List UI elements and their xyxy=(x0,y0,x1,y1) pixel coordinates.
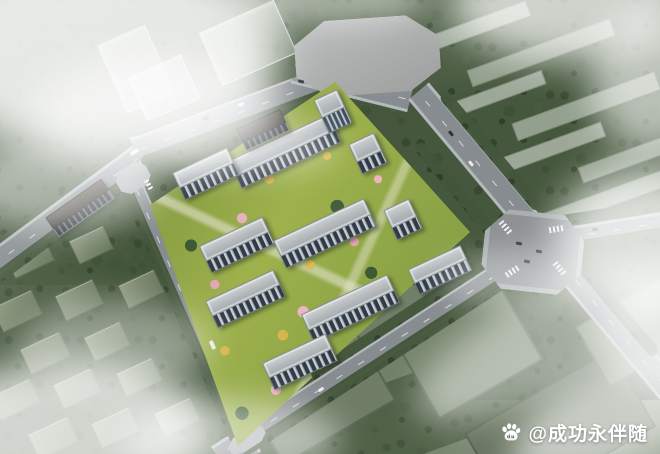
cloud xyxy=(20,300,210,390)
svg-text:du: du xyxy=(507,433,515,439)
watermark: du @成功永伴随 xyxy=(500,419,648,446)
watermark-text: @成功永伴随 xyxy=(528,419,648,446)
cloud xyxy=(150,118,340,178)
cloud xyxy=(440,250,590,310)
aerial-rendering: du @成功永伴随 xyxy=(0,0,660,454)
baidu-paw-icon: du xyxy=(500,422,522,444)
